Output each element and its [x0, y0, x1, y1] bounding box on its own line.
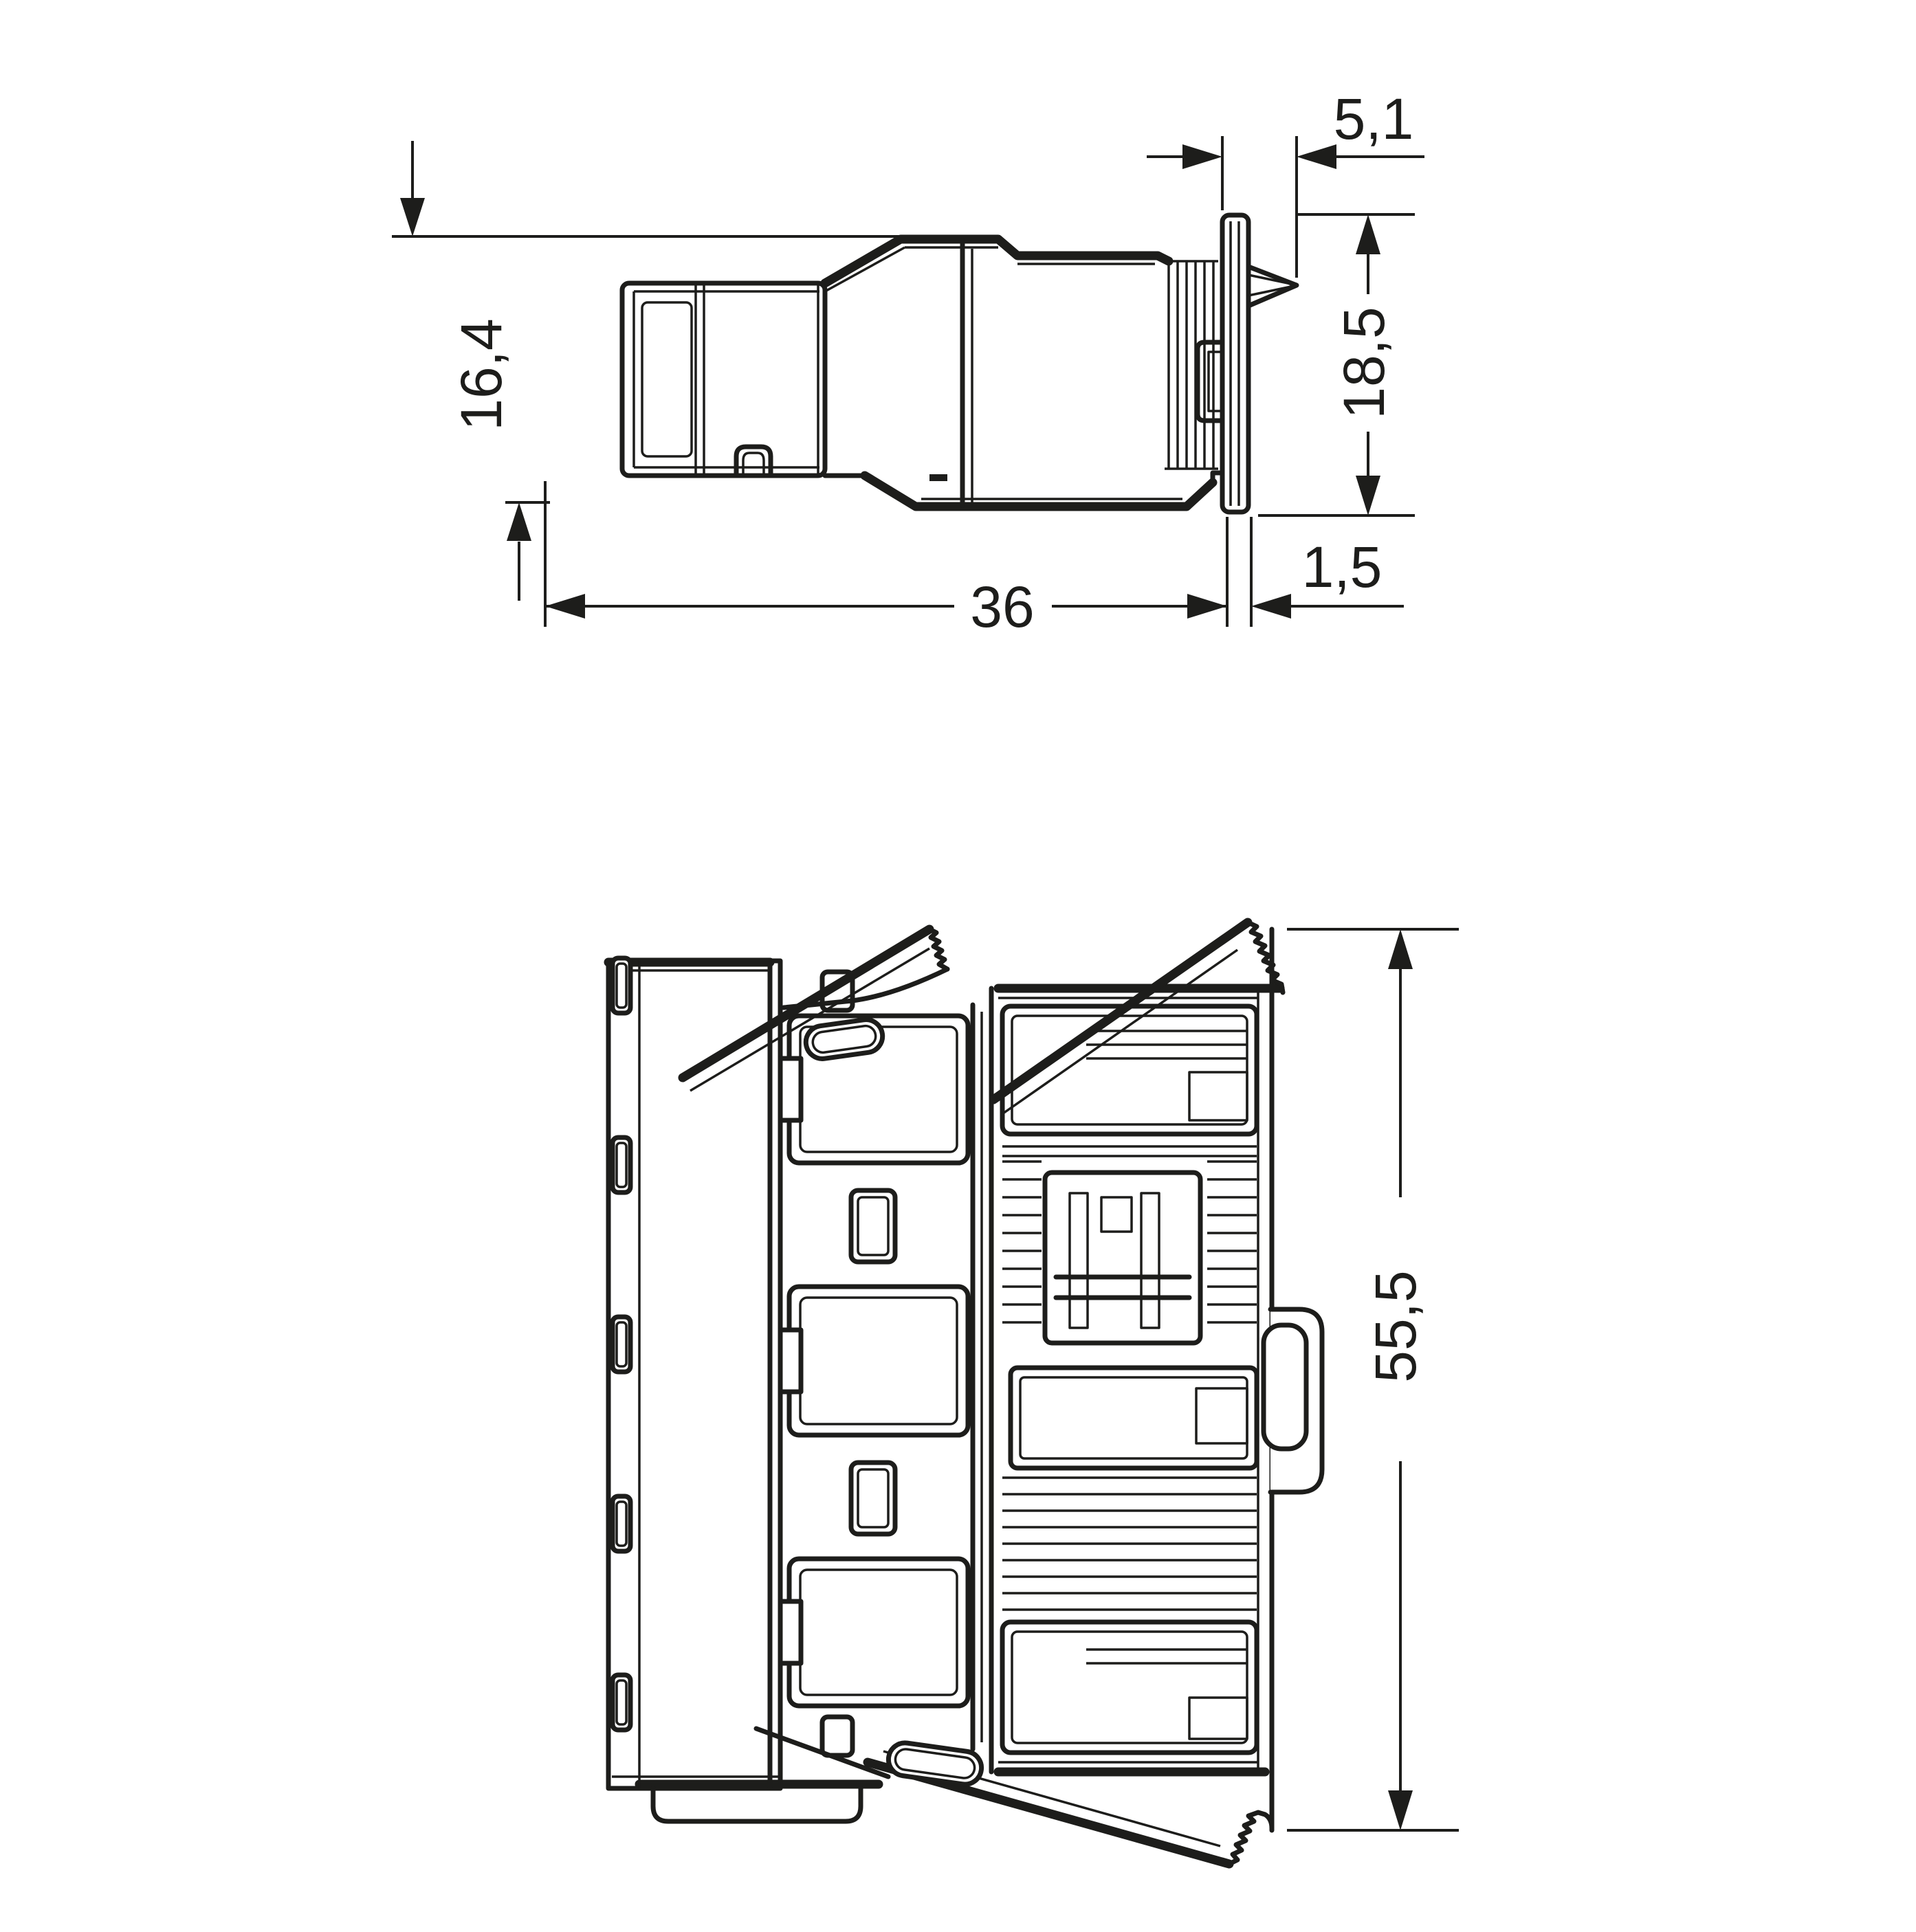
dimension-panel-clamp: 5,1 [1147, 87, 1424, 278]
housing-bottom-module [1002, 1622, 1257, 1753]
housing-mid-module [1011, 1368, 1257, 1468]
vent-hole [613, 1317, 630, 1372]
connector-dimension-drawing: 16,4 5,1 18,5 36 1,5 [0, 0, 1916, 1932]
lever-serration [929, 929, 947, 969]
arrowheads [1182, 144, 1336, 169]
vent-hole [613, 1137, 630, 1192]
cover-plate-bottom-lip [653, 1788, 861, 1821]
side-view: 16,4 5,1 18,5 36 1,5 [392, 87, 1424, 639]
dimension-flange-thickness: 1,5 [1251, 535, 1404, 619]
bottom-foot [929, 474, 947, 481]
side-view-body [622, 215, 1297, 512]
front-housing [622, 283, 825, 476]
arrowheads [1251, 594, 1291, 619]
body-profile-parallels [825, 247, 1182, 499]
strain-relief-ribs [1165, 261, 1218, 469]
module-2-side-tab [780, 1330, 801, 1392]
rib-band-lower [1002, 1478, 1257, 1610]
vent-hole [613, 1675, 630, 1730]
lever-slot-outline [886, 1741, 983, 1786]
lever-serration [1248, 922, 1283, 992]
right-housing-column [991, 929, 1280, 1830]
middle-module-column [780, 972, 982, 1755]
mounting-flange [1222, 215, 1248, 512]
bottom-tab [822, 1717, 852, 1755]
latch-handle-loop [1264, 1309, 1322, 1492]
vent-hole [613, 1496, 630, 1551]
flange-bracket [1198, 342, 1222, 421]
dim-label-flange-height: 18,5 [1332, 307, 1396, 419]
lever-slot [886, 1741, 983, 1786]
lower-left-lever [756, 1729, 984, 1786]
dim-label-panel-clamp: 5,1 [1334, 87, 1414, 151]
module-3-side-tab [780, 1601, 801, 1663]
handle-window [1264, 1325, 1306, 1449]
dim-label-flange-thickness: 1,5 [1302, 535, 1383, 599]
technical-drawing-canvas: 16,4 5,1 18,5 36 1,5 [0, 0, 1916, 1932]
cover-plate-outline [608, 961, 780, 1788]
body-bottom-profile [865, 476, 1213, 507]
body-top-profile [825, 239, 1169, 283]
lever-serration [1229, 1812, 1272, 1864]
dim-label-front-height: 16,4 [449, 318, 514, 431]
body-misc-outlines [825, 241, 1222, 505]
module-3 [789, 1559, 968, 1706]
dim-label-body-length: 36 [970, 575, 1034, 639]
front-view: 55,5 [608, 922, 1459, 1864]
module-1-side-tab [780, 1058, 801, 1120]
vent-hole [613, 958, 630, 1013]
dimension-flange-height: 18,5 [1258, 214, 1415, 515]
module-2 [789, 1287, 968, 1435]
dim-label-overall-height: 55,5 [1363, 1270, 1428, 1383]
